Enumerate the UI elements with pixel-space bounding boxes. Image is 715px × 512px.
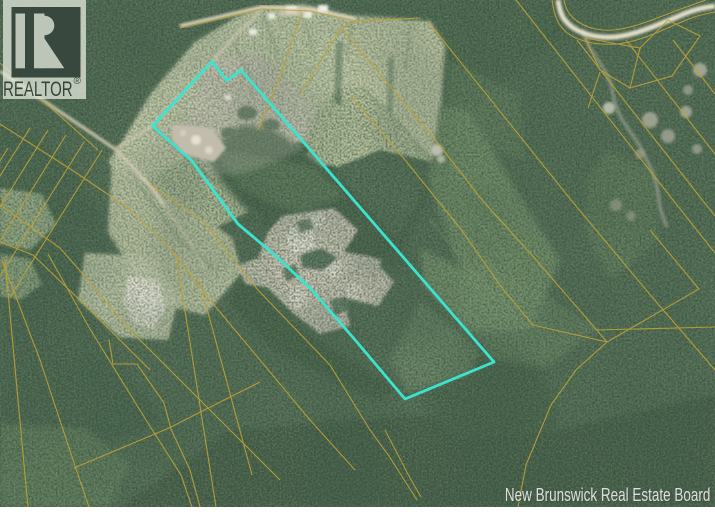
svg-text:REALTOR: REALTOR: [3, 76, 73, 100]
svg-text:New Brunswick Real Estate Boar: New Brunswick Real Estate Board: [505, 485, 711, 506]
svg-text:®: ®: [74, 76, 82, 87]
